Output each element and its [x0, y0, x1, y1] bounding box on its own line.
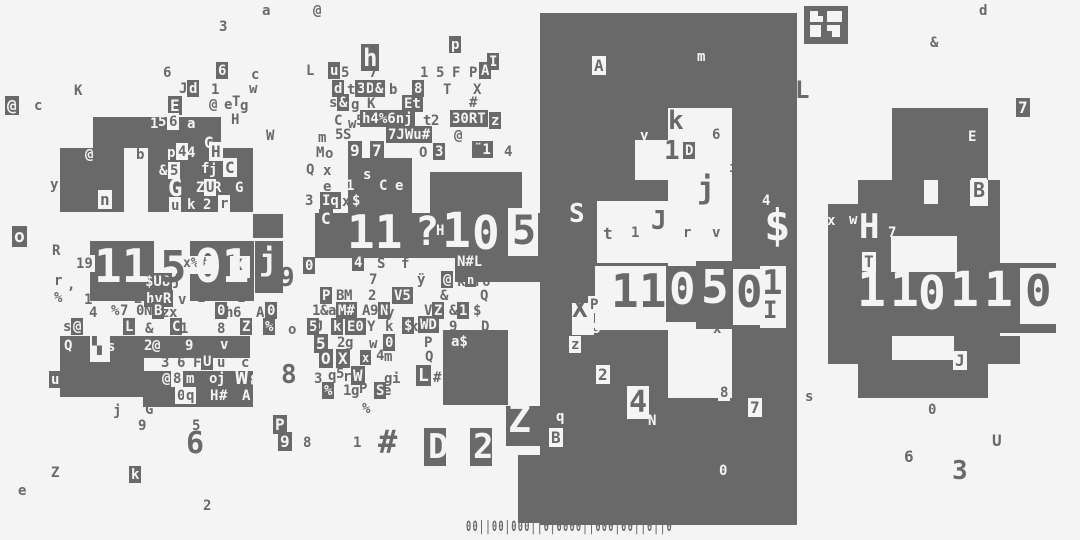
glyph: 6	[177, 356, 185, 370]
glyph: 11	[94, 243, 149, 289]
glyph: Z	[508, 400, 531, 438]
glyph: k	[187, 198, 195, 212]
glyph: 1	[457, 302, 469, 319]
glyph: o	[325, 147, 333, 161]
glyph: Q	[480, 289, 488, 303]
glyph: Q	[425, 350, 433, 364]
glyph: k	[331, 318, 343, 335]
glyph: k	[385, 320, 393, 334]
glyph: 7	[888, 226, 896, 240]
glyph: 7	[748, 398, 762, 417]
glyph: ▚	[90, 336, 104, 355]
ascii-noise-canvas: a@3d&phI66cLu5715FPAKJd1wdt3D&b8TX@cE@eT…	[0, 0, 1080, 540]
glyph: 6	[163, 66, 171, 80]
noise-hole	[508, 342, 540, 394]
glyph: Q	[64, 339, 72, 353]
glyph: 8	[718, 384, 730, 401]
glyph: %	[263, 318, 275, 335]
glyph: #	[469, 96, 477, 110]
glyph: s	[805, 390, 813, 404]
glyph: WD	[418, 316, 439, 333]
glyph: %	[474, 336, 482, 350]
glyph: p	[167, 146, 175, 160]
glyph: 11	[347, 209, 402, 255]
glyph: c	[34, 99, 42, 113]
glyph: 6	[482, 275, 490, 289]
logo-quadrant	[827, 11, 842, 22]
glyph: &	[145, 322, 153, 336]
glyph: b	[389, 83, 397, 97]
glyph: 0	[928, 403, 936, 417]
glyph: 1	[180, 322, 188, 336]
glyph: 1	[950, 266, 979, 314]
glyph: D	[428, 430, 448, 464]
glyph: C	[334, 114, 342, 128]
glyph: 2	[368, 289, 376, 303]
glyph: V5	[392, 287, 413, 304]
glyph: J	[651, 208, 667, 234]
glyph: m	[186, 372, 194, 386]
glyph: 1	[664, 138, 680, 164]
glyph: R	[213, 181, 221, 195]
glyph: 7JWu#	[386, 126, 432, 143]
glyph: H	[210, 389, 218, 403]
glyph: j	[209, 163, 217, 177]
glyph: &	[373, 80, 385, 97]
glyph: ?	[415, 212, 439, 252]
glyph: @	[152, 339, 160, 353]
glyph: 3	[433, 143, 445, 160]
noise-block	[253, 214, 283, 238]
glyph: P	[320, 287, 332, 304]
glyph: A	[479, 62, 491, 79]
glyph: 0	[918, 270, 946, 316]
noise-block	[858, 180, 924, 206]
glyph: 0	[719, 464, 727, 478]
glyph: z	[569, 336, 581, 353]
glyph: m	[318, 131, 326, 145]
glyph: P	[424, 336, 432, 350]
glyph: 3	[161, 356, 169, 370]
glyph: 1	[984, 266, 1013, 314]
glyph: @	[71, 318, 83, 335]
glyph: H	[859, 210, 879, 244]
glyph: j	[259, 246, 277, 276]
glyph: L	[795, 78, 809, 102]
glyph: S	[592, 322, 600, 336]
glyph: 9	[278, 432, 292, 451]
glyph: r	[54, 274, 62, 288]
glyph: H	[209, 142, 223, 161]
glyph: v	[218, 336, 230, 353]
glyph: i	[729, 161, 737, 175]
glyph: 0	[1025, 270, 1052, 314]
glyph: 1	[762, 266, 782, 300]
glyph: K	[74, 84, 82, 98]
glyph: Z	[240, 318, 252, 335]
glyph: y	[50, 178, 58, 192]
noise-block	[938, 180, 1000, 206]
glyph: 5	[160, 246, 187, 290]
glyph: 1	[857, 266, 886, 314]
glyph: w	[249, 82, 257, 96]
glyph: S	[343, 128, 351, 142]
glyph: r	[218, 195, 230, 212]
glyph: A	[592, 56, 606, 75]
glyph: J	[315, 320, 323, 334]
noise-block	[858, 360, 988, 398]
glyph: 5	[158, 115, 166, 129]
glyph: 6	[902, 447, 916, 466]
glyph: a$	[449, 333, 470, 350]
glyph: K	[367, 97, 375, 111]
glyph: Z	[51, 466, 59, 480]
glyph: c	[251, 68, 259, 82]
glyph: u	[217, 356, 225, 370]
glyph: 30RT	[450, 110, 488, 127]
glyph: m	[697, 50, 705, 64]
glyph: #	[219, 389, 227, 403]
glyph: 5	[512, 211, 536, 251]
glyph: &	[440, 289, 448, 303]
glyph: 1	[211, 83, 219, 97]
logo-notch	[827, 31, 832, 37]
glyph: 6	[216, 62, 228, 79]
glyph: 5	[436, 66, 444, 80]
glyph: C	[319, 209, 333, 228]
glyph: D	[481, 320, 489, 334]
glyph: #	[378, 426, 397, 458]
glyph: 11	[611, 268, 666, 314]
glyph: M	[316, 146, 324, 160]
glyph: n	[98, 190, 112, 209]
glyph: g	[240, 99, 248, 113]
glyph: j	[113, 404, 121, 418]
glyph: G	[235, 181, 243, 195]
glyph: 19	[74, 255, 95, 272]
glyph: @	[454, 129, 462, 143]
glyph: x	[713, 322, 721, 336]
glyph: 3	[305, 194, 313, 208]
glyph: H	[231, 113, 239, 127]
glyph: m	[384, 350, 392, 364]
glyph: 7	[369, 273, 377, 287]
glyph: v	[178, 293, 186, 307]
glyph: G	[145, 403, 153, 417]
glyph: &	[159, 164, 167, 178]
glyph: 2	[203, 499, 211, 513]
glyph: 9	[138, 419, 146, 433]
glyph: B	[971, 178, 987, 201]
glyph: J	[953, 351, 967, 370]
glyph: 4	[504, 145, 512, 159]
glyph: 1	[237, 291, 245, 305]
glyph: 4	[627, 386, 649, 419]
logo-notch	[818, 11, 823, 16]
glyph: q	[556, 410, 564, 424]
glyph: 01	[194, 243, 249, 289]
glyph: 1	[890, 266, 919, 314]
glyph: r	[683, 226, 691, 240]
glyph: O	[319, 349, 333, 368]
glyph: i	[392, 372, 400, 386]
glyph: 1	[420, 66, 428, 80]
glyph: 6	[186, 429, 204, 459]
glyph: 3	[219, 20, 227, 34]
glyph: 9	[185, 339, 193, 353]
glyph: y	[640, 129, 648, 143]
glyph: O	[419, 146, 427, 160]
glyph: W	[266, 129, 274, 143]
glyph: P	[588, 296, 600, 313]
glyph: 7	[370, 141, 384, 160]
glyph: 1	[631, 226, 639, 240]
glyph: M#	[336, 302, 357, 319]
glyph: #	[433, 371, 441, 385]
glyph: q	[184, 387, 196, 404]
glyph: j	[697, 174, 715, 204]
glyph: g	[351, 98, 359, 112]
glyph: L	[123, 318, 135, 335]
glyph: 0	[265, 302, 277, 319]
glyph: Y	[367, 320, 375, 334]
glyph: P	[359, 382, 367, 396]
glyph: $	[473, 304, 481, 318]
glyph: Iq	[320, 192, 341, 209]
glyph: e	[393, 177, 405, 194]
glyph: j	[217, 372, 225, 386]
glyph: 6	[712, 128, 720, 142]
glyph: u	[49, 371, 61, 388]
glyph: 2	[203, 198, 211, 212]
glyph: L	[306, 64, 314, 78]
glyph: Q	[306, 163, 314, 177]
glyph: %	[111, 304, 119, 318]
glyph: x	[323, 164, 331, 178]
glyph: v	[712, 226, 720, 240]
glyph: T	[443, 83, 451, 97]
glyph: A	[242, 389, 250, 403]
glyph: k	[129, 466, 141, 483]
glyph: %	[362, 402, 370, 416]
glyph: 1	[346, 179, 354, 193]
glyph: 1	[442, 207, 471, 255]
glyph: Y	[473, 275, 481, 289]
glyph: X	[572, 296, 588, 322]
glyph: a	[187, 117, 195, 131]
glyph: D	[683, 142, 695, 159]
logo-quadrant	[810, 25, 821, 37]
glyph: z	[489, 112, 501, 129]
glyph: 7	[369, 66, 377, 80]
glyph: 8	[250, 374, 258, 388]
glyph: u	[169, 197, 181, 214]
glyph: @	[85, 148, 93, 162]
glyph: &	[337, 94, 349, 111]
glyph: 8	[171, 370, 183, 387]
glyph: C	[377, 177, 389, 194]
glyph: t	[601, 224, 615, 243]
glyph: S	[569, 201, 585, 227]
glyph: f	[401, 257, 409, 271]
glyph: C	[223, 158, 237, 177]
glyph: g	[345, 336, 353, 350]
glyph: E	[968, 130, 976, 144]
glyph: 0	[472, 210, 500, 256]
glyph: @	[162, 372, 170, 386]
glyph: 8	[303, 436, 311, 450]
glyph: 8	[217, 322, 225, 336]
glyph: 4	[187, 146, 195, 160]
binary-strip: 00||00|000||0|0000||000|00||0||0	[466, 520, 673, 534]
glyph: @	[441, 271, 453, 288]
glyph: N	[648, 414, 656, 428]
glyph: b	[136, 148, 144, 162]
glyph: 7	[1016, 98, 1030, 117]
glyph: 3	[952, 458, 968, 484]
glyph: x	[360, 350, 371, 365]
glyph: U	[990, 431, 1004, 450]
glyph: 5	[701, 264, 729, 310]
glyph: s	[363, 168, 371, 182]
glyph: d	[979, 4, 987, 18]
glyph: 0	[736, 271, 763, 315]
glyph: w	[849, 213, 857, 227]
glyph: %	[54, 291, 62, 305]
glyph: L	[416, 365, 431, 386]
glyph: 9	[449, 320, 457, 334]
glyph: U	[201, 353, 213, 370]
glyph: 1	[353, 436, 361, 450]
noise-block	[518, 455, 540, 523]
glyph: o	[12, 226, 27, 247]
glyph: 2	[596, 365, 610, 384]
glyph: s	[107, 340, 115, 354]
glyph: ÿ	[417, 273, 425, 287]
glyph: d	[187, 80, 199, 97]
glyph: W	[235, 367, 248, 389]
glyph: e	[383, 384, 391, 398]
glyph: &	[930, 36, 938, 50]
glyph: x	[827, 214, 835, 228]
glyph: e	[18, 484, 26, 498]
glyph: 6	[167, 113, 179, 130]
checker-logo-icon	[804, 6, 848, 44]
glyph: @	[313, 4, 321, 18]
glyph: $	[764, 204, 791, 248]
glyph: ¨1	[472, 141, 493, 158]
glyph: F	[452, 66, 460, 80]
glyph: 5	[341, 66, 349, 80]
glyph: @	[209, 98, 217, 112]
glyph: 1	[197, 291, 205, 305]
glyph: X	[336, 349, 350, 368]
glyph: 0	[669, 268, 696, 312]
glyph: 2	[431, 114, 439, 128]
glyph: a	[262, 4, 270, 18]
glyph: p	[449, 36, 461, 53]
glyph: 4	[89, 306, 97, 320]
glyph: E0	[345, 318, 366, 335]
glyph: o	[288, 323, 296, 337]
glyph: P	[469, 66, 477, 80]
glyph: 9	[279, 265, 295, 291]
glyph: y	[386, 306, 394, 320]
glyph: @	[5, 96, 19, 115]
glyph: 9	[348, 141, 362, 160]
glyph: 7	[120, 304, 128, 318]
glyph: 8	[281, 362, 297, 388]
glyph: %	[322, 382, 334, 399]
glyph: k	[668, 108, 684, 134]
glyph: I	[763, 298, 777, 322]
glyph: 2	[473, 430, 493, 464]
noise-block	[60, 356, 144, 397]
glyph: M	[344, 289, 352, 303]
glyph: 0	[303, 257, 315, 274]
glyph: B	[549, 428, 563, 447]
glyph: R	[52, 244, 60, 258]
glyph: h4%6nj	[360, 110, 415, 127]
glyph: ,	[67, 278, 75, 292]
glyph: u	[328, 62, 340, 79]
glyph: S	[377, 257, 385, 271]
